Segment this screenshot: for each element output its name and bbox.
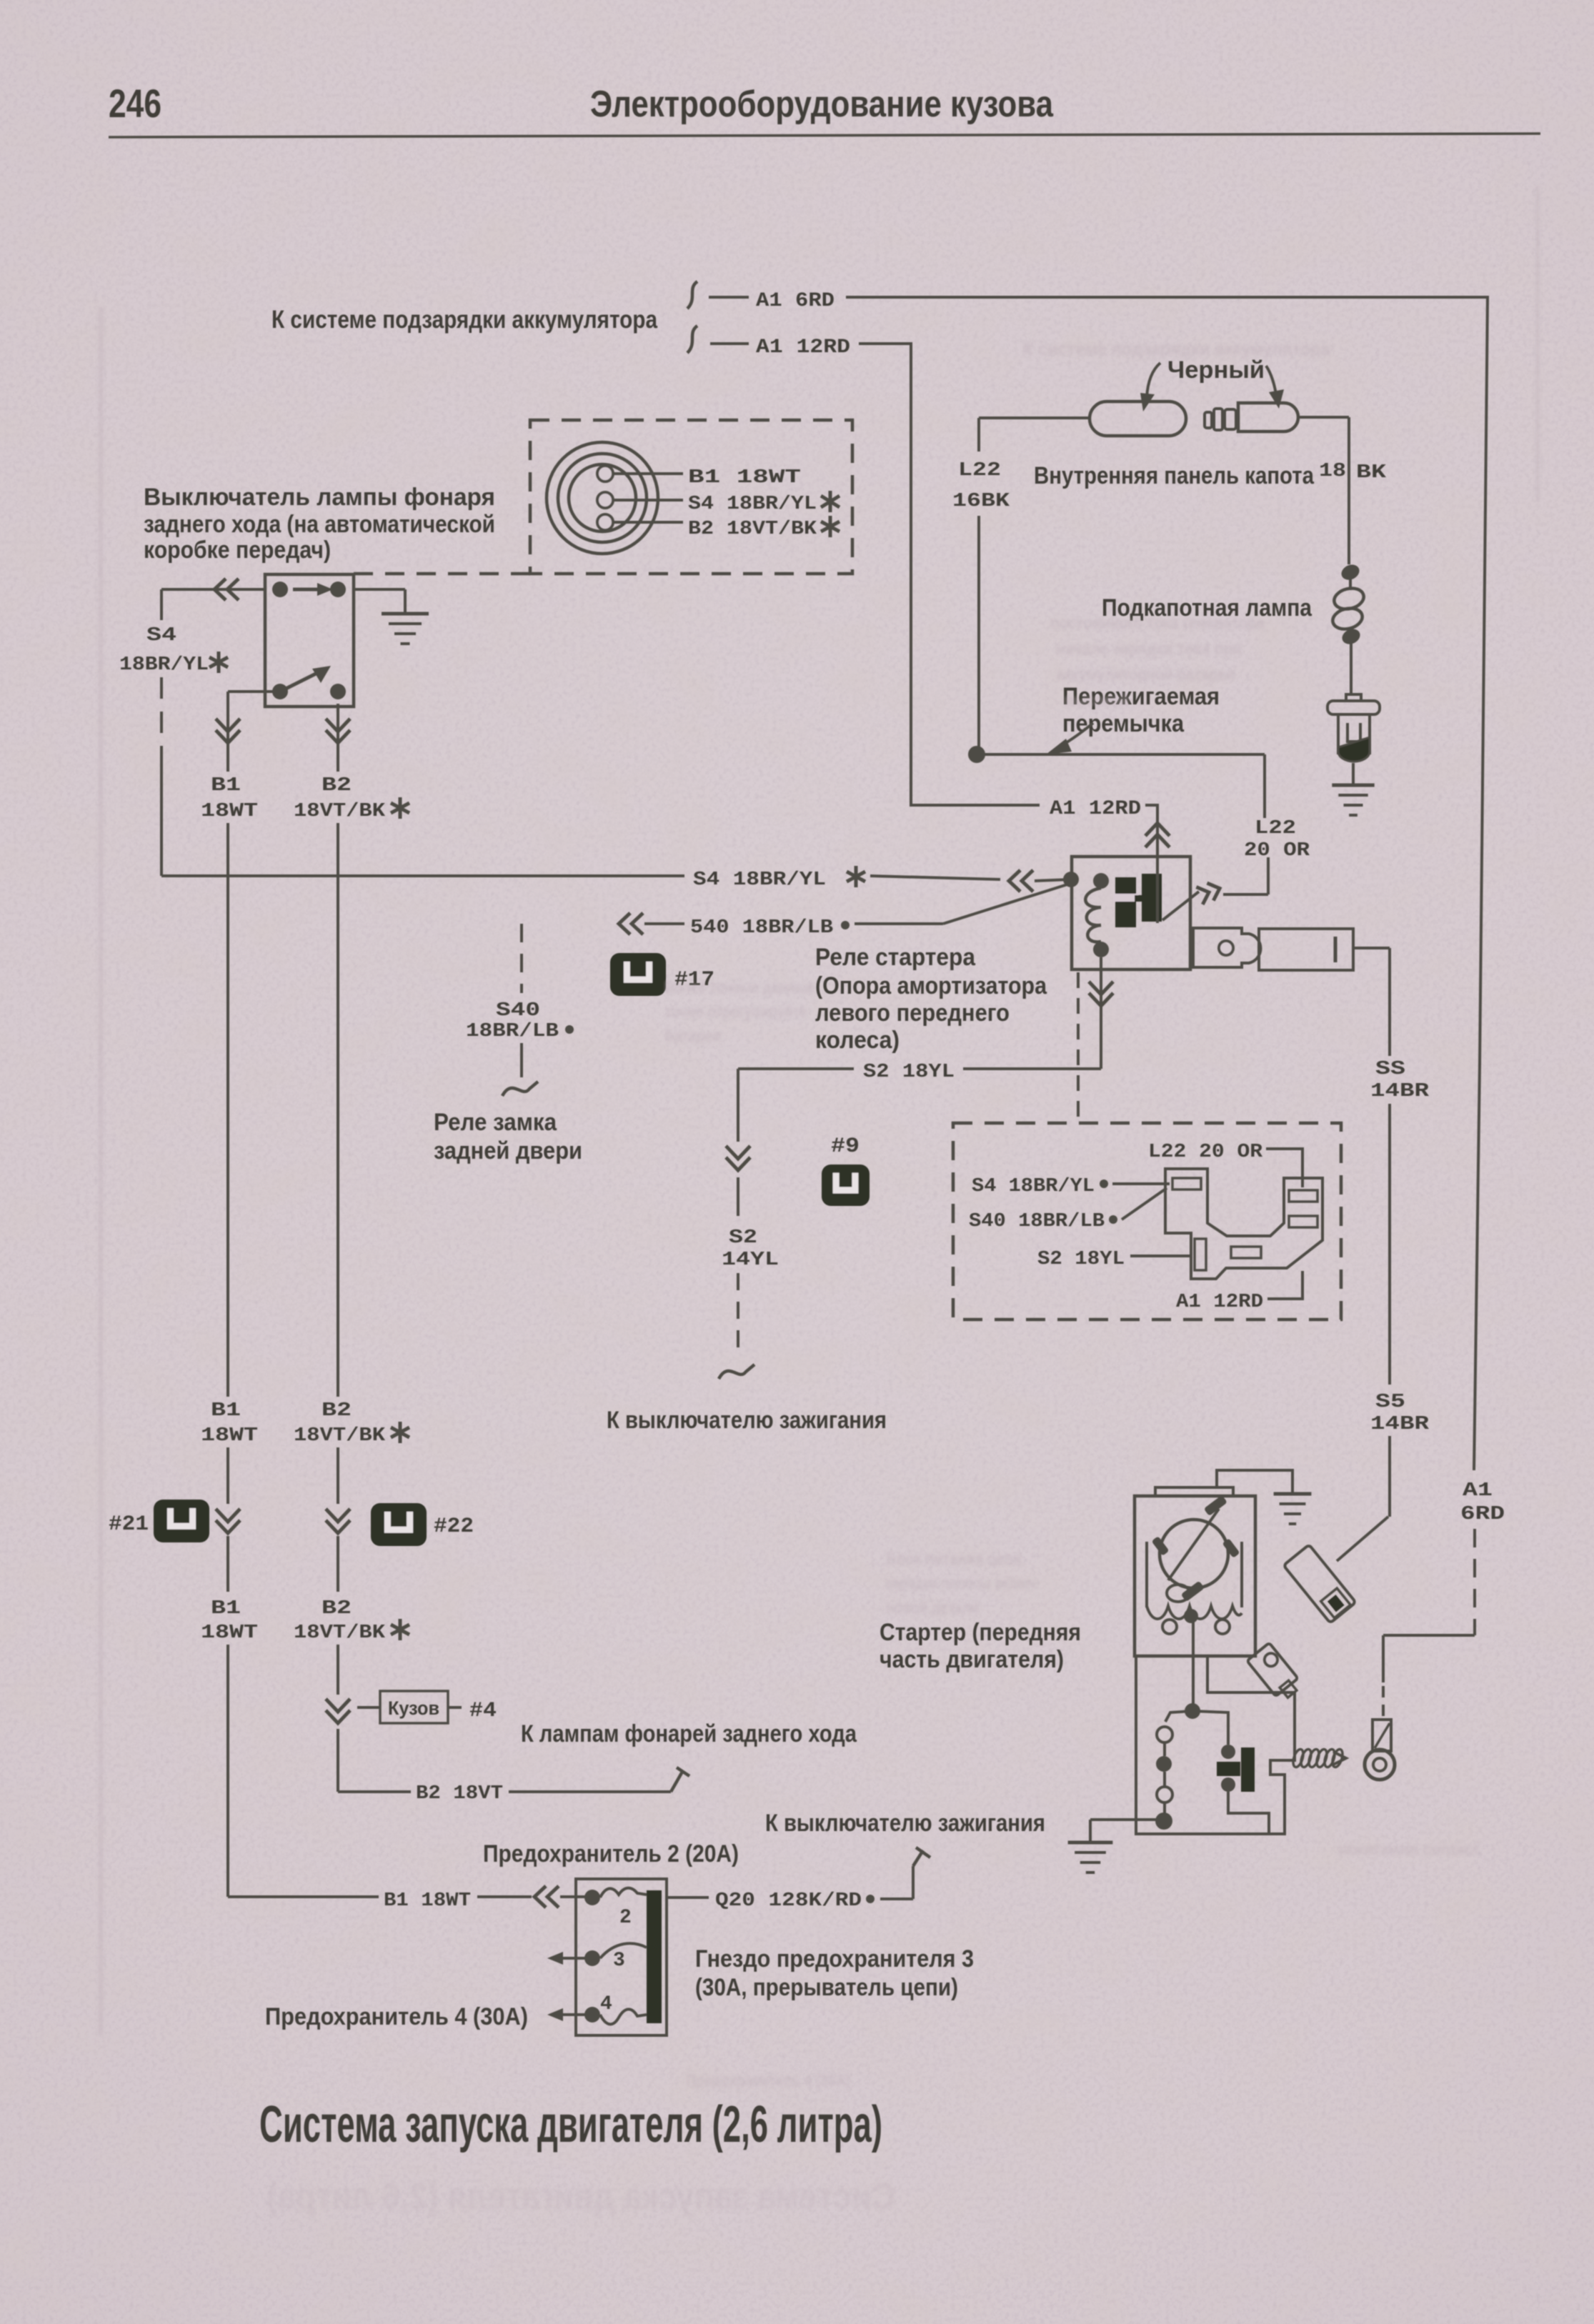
svg-text:18WT: 18WT: [201, 801, 258, 822]
svg-text:Гнездо предохранителя 3: Гнездо предохранителя 3: [695, 1945, 974, 1973]
svg-text:S2 18YL: S2 18YL: [1037, 1249, 1125, 1270]
svg-text:246: 246: [109, 81, 161, 126]
svg-text:Реле замка: Реле замка: [434, 1109, 557, 1136]
svg-text:18VT/BK: 18VT/BK: [294, 1425, 386, 1447]
svg-text:зарядки полосы включ: зарядки полосы включ: [886, 1574, 1036, 1593]
svg-text:A1: A1: [1463, 1480, 1493, 1502]
svg-text:16BK: 16BK: [952, 491, 1010, 512]
svg-text:левого переднего: левого переднего: [815, 999, 1010, 1027]
svg-text:заднего хода (на автоматическо: заднего хода (на автоматической: [144, 511, 495, 538]
svg-text:#21: #21: [109, 1512, 149, 1537]
svg-text:18WT: 18WT: [201, 1622, 258, 1644]
svg-text:A1 12RD: A1 12RD: [1050, 798, 1141, 820]
svg-text:S40: S40: [496, 1000, 540, 1022]
svg-text:#4: #4: [469, 1699, 497, 1723]
svg-text:S4: S4: [146, 625, 176, 647]
svg-text:2: 2: [619, 1907, 632, 1929]
svg-text:точно отрегулируйте: точно отрегулируйте: [664, 1002, 807, 1022]
svg-text:SS: SS: [1375, 1059, 1405, 1080]
svg-text:батареи: батареи: [664, 1027, 722, 1046]
svg-text:часть двигателя): часть двигателя): [880, 1646, 1064, 1673]
svg-text:18BR/LB: 18BR/LB: [466, 1021, 559, 1042]
svg-text:L22: L22: [958, 460, 1001, 482]
svg-text:Система запуска двигателя (2,6: Система запуска двигателя (2,6 литра): [267, 2176, 895, 2218]
svg-text:BK: BK: [1356, 462, 1387, 484]
svg-text:постоянного тока генератора: постоянного тока генератора: [1050, 614, 1265, 633]
svg-text:Система запуска двигателя (2,6: Система запуска двигателя (2,6 литра): [259, 2096, 882, 2153]
svg-text:4: 4: [600, 1993, 612, 2015]
svg-text:B2: B2: [322, 775, 352, 797]
svg-text:3: 3: [613, 1950, 625, 1972]
svg-text:20 OR: 20 OR: [1244, 840, 1310, 862]
svg-text:задней двери: задней двери: [434, 1137, 582, 1165]
svg-text:Предохранитель 4 (30А): Предохранитель 4 (30А): [265, 2003, 528, 2030]
svg-text:B1 18WT: B1 18WT: [384, 1890, 471, 1912]
svg-text:Более точные данные: Более точные данные: [664, 978, 815, 997]
svg-text:аккумуляторной батареи: аккумуляторной батареи: [1056, 665, 1235, 684]
svg-text:Блок питания цепи: Блок питания цепи: [886, 1550, 1022, 1569]
svg-text:B2: B2: [322, 1598, 352, 1620]
svg-text:Выключатель лампы фонаря: Выключатель лампы фонаря: [144, 484, 495, 511]
svg-text:S4 18BR/YL: S4 18BR/YL: [972, 1176, 1095, 1197]
svg-text:К выключателю зажигания: К выключателю зажигания: [607, 1407, 887, 1434]
svg-text:S2: S2: [729, 1227, 757, 1249]
svg-text:S4 18BR/YL: S4 18BR/YL: [688, 494, 817, 515]
svg-text:540 18BR/LB: 540 18BR/LB: [690, 917, 833, 939]
svg-text:К системе подзарядки аккумулят: К системе подзарядки аккумулятора: [272, 306, 657, 334]
svg-text:14YL: 14YL: [722, 1250, 779, 1271]
svg-text:К системе подзарядки аккумулят: К системе подзарядки аккумулятора: [1023, 338, 1330, 359]
svg-text:B2 18VT: B2 18VT: [416, 1783, 503, 1805]
svg-text:новой детали: новой детали: [886, 1598, 979, 1617]
svg-text:К выключателю зажигания: К выключателю зажигания: [765, 1810, 1045, 1837]
svg-text:(30А, прерыватель цепи): (30А, прерыватель цепи): [695, 1974, 958, 2001]
svg-text:14BR: 14BR: [1370, 1081, 1430, 1102]
svg-text:18VT/BK: 18VT/BK: [294, 1622, 386, 1644]
svg-text:колеса): колеса): [815, 1027, 900, 1054]
svg-text:B1: B1: [211, 1400, 241, 1422]
svg-text:Электрооборудование кузова: Электрооборудование кузова: [590, 84, 1054, 125]
svg-text:18: 18: [1319, 461, 1346, 482]
svg-text:18BR/YL: 18BR/YL: [119, 654, 209, 676]
svg-text:A1 12RD: A1 12RD: [1176, 1292, 1263, 1313]
svg-text:Предохранитель 4 (30А): Предохранитель 4 (30А): [686, 2071, 850, 2090]
svg-text:Кузов: Кузов: [388, 1697, 439, 1719]
svg-text:B1 18WT: B1 18WT: [688, 467, 801, 489]
svg-text:Стартер (передняя: Стартер (передняя: [880, 1619, 1081, 1646]
svg-text:Черный: Черный: [1167, 356, 1265, 384]
svg-text:B2 18VT/BK: B2 18VT/BK: [688, 519, 817, 540]
svg-text:B1: B1: [211, 775, 241, 797]
svg-text:14BR: 14BR: [1370, 1414, 1430, 1435]
svg-text:#9: #9: [831, 1134, 860, 1159]
svg-text:6RD: 6RD: [1460, 1504, 1505, 1525]
svg-text:S4 18BR/YL: S4 18BR/YL: [693, 869, 826, 891]
svg-text:L22 20 OR: L22 20 OR: [1148, 1142, 1263, 1163]
svg-text:#22: #22: [434, 1515, 474, 1539]
svg-text:B2: B2: [322, 1400, 352, 1422]
svg-text:B1: B1: [211, 1598, 241, 1620]
svg-text:S40 18BR/LB: S40 18BR/LB: [969, 1211, 1105, 1232]
svg-text:L22: L22: [1255, 818, 1296, 839]
svg-text:зажигание contact: зажигание contact: [1336, 1840, 1480, 1858]
svg-text:коробке передач): коробке передач): [144, 537, 331, 564]
svg-text:Q20 128K/RD: Q20 128K/RD: [715, 1890, 862, 1912]
svg-text:A1 6RD: A1 6RD: [756, 290, 835, 312]
svg-text:18VT/BK: 18VT/BK: [294, 801, 386, 822]
svg-text:Реле стартера: Реле стартера: [815, 944, 976, 971]
svg-text:Предохранитель 2 (20А): Предохранитель 2 (20А): [483, 1840, 739, 1867]
svg-text:18WT: 18WT: [201, 1425, 258, 1447]
svg-text:S5: S5: [1375, 1392, 1405, 1413]
svg-text:S2 18YL: S2 18YL: [863, 1062, 955, 1083]
svg-text:высокой: высокой: [1065, 691, 1129, 710]
svg-text:A1 12RD: A1 12RD: [756, 336, 850, 359]
svg-text:К лампам фонарей заднего хода: К лампам фонарей заднего хода: [521, 1720, 857, 1747]
svg-text:(Опора амортизатора: (Опора амортизатора: [815, 972, 1047, 999]
svg-text:Внутренняя панель капота: Внутренняя панель капота: [1034, 462, 1315, 489]
svg-text:начале зарядки тока при: начале зарядки тока при: [1056, 639, 1242, 659]
